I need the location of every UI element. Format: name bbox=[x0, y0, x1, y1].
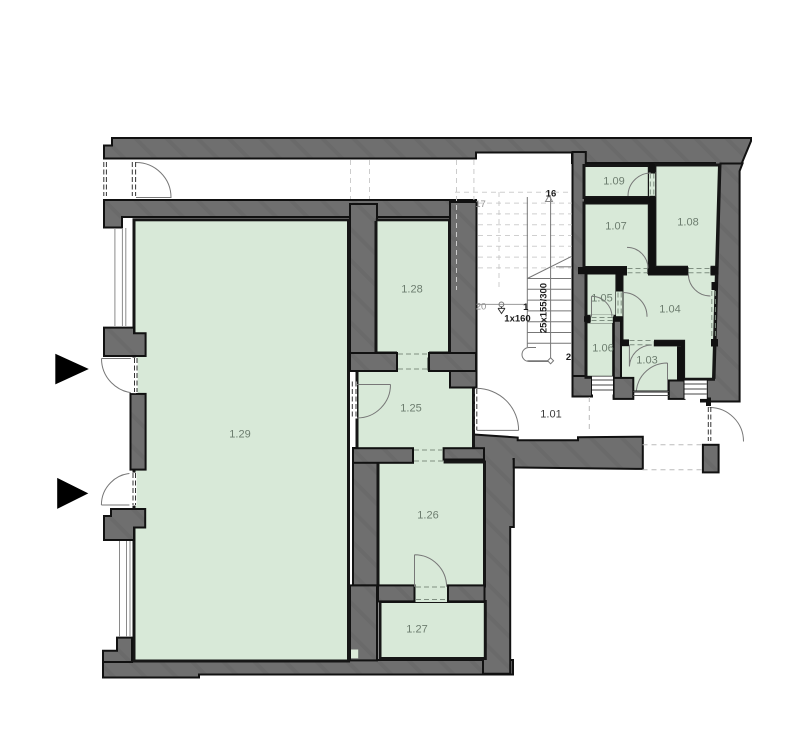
svg-text:2: 2 bbox=[566, 352, 571, 363]
svg-text:1.01: 1.01 bbox=[540, 409, 561, 421]
svg-text:16: 16 bbox=[546, 189, 557, 200]
svg-text:25x155/300: 25x155/300 bbox=[539, 283, 550, 333]
svg-text:1.03: 1.03 bbox=[636, 355, 657, 367]
svg-text:20: 20 bbox=[476, 302, 487, 313]
svg-text:1.26: 1.26 bbox=[417, 510, 438, 522]
svg-text:1.05: 1.05 bbox=[591, 293, 612, 305]
svg-text:1.27: 1.27 bbox=[406, 624, 427, 636]
svg-text:1.04: 1.04 bbox=[659, 304, 680, 316]
svg-text:1.28: 1.28 bbox=[401, 284, 422, 296]
svg-text:1.29: 1.29 bbox=[229, 429, 250, 441]
svg-text:1.07: 1.07 bbox=[605, 221, 626, 233]
svg-text:1.08: 1.08 bbox=[677, 217, 698, 229]
svg-text:1x160: 1x160 bbox=[504, 314, 530, 325]
svg-text:1.06: 1.06 bbox=[592, 343, 613, 355]
svg-text:17: 17 bbox=[475, 199, 486, 210]
svg-text:1.09: 1.09 bbox=[603, 176, 624, 188]
svg-text:1.25: 1.25 bbox=[400, 403, 421, 415]
svg-text:1: 1 bbox=[523, 302, 529, 313]
